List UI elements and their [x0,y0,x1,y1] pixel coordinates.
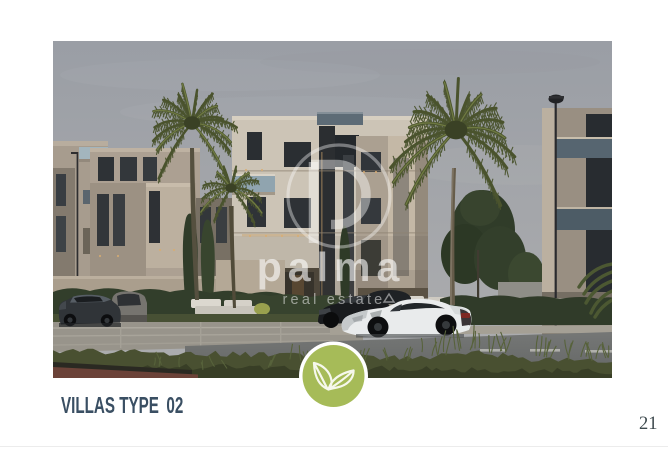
svg-text:real estate: real estate [283,292,386,308]
svg-text:palma: palma [257,244,406,290]
